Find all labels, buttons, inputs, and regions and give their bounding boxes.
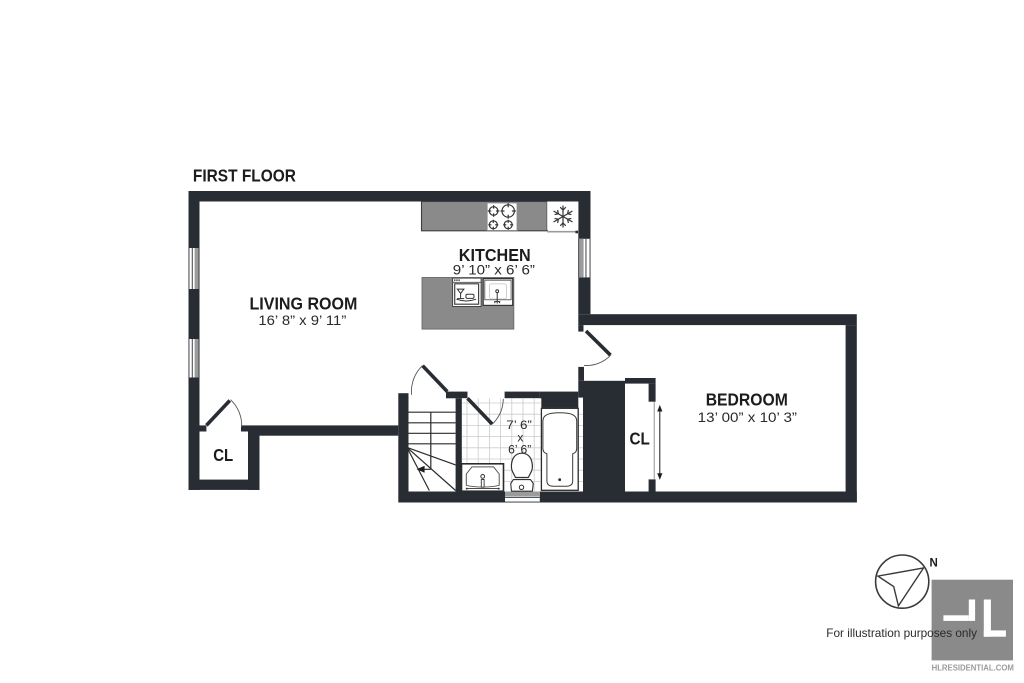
svg-text:CL: CL — [630, 428, 651, 448]
svg-text:N: N — [930, 558, 938, 570]
svg-text:For illustration purposes only: For illustration purposes only — [826, 627, 977, 640]
svg-text:LIVING ROOM: LIVING ROOM — [250, 294, 358, 314]
svg-text:CL: CL — [213, 445, 233, 465]
svg-text:9’ 10” x 6’ 6”: 9’ 10” x 6’ 6” — [453, 262, 535, 278]
svg-text:BEDROOM: BEDROOM — [706, 390, 788, 410]
svg-text:16’ 8” x 9’ 11”: 16’ 8” x 9’ 11” — [258, 312, 346, 328]
svg-text:HLRESIDENTIAL.COM: HLRESIDENTIAL.COM — [932, 663, 1015, 672]
svg-text:13’ 00” x 10’ 3”: 13’ 00” x 10’ 3” — [698, 409, 798, 425]
svg-text:FIRST FLOOR: FIRST FLOOR — [193, 166, 296, 186]
